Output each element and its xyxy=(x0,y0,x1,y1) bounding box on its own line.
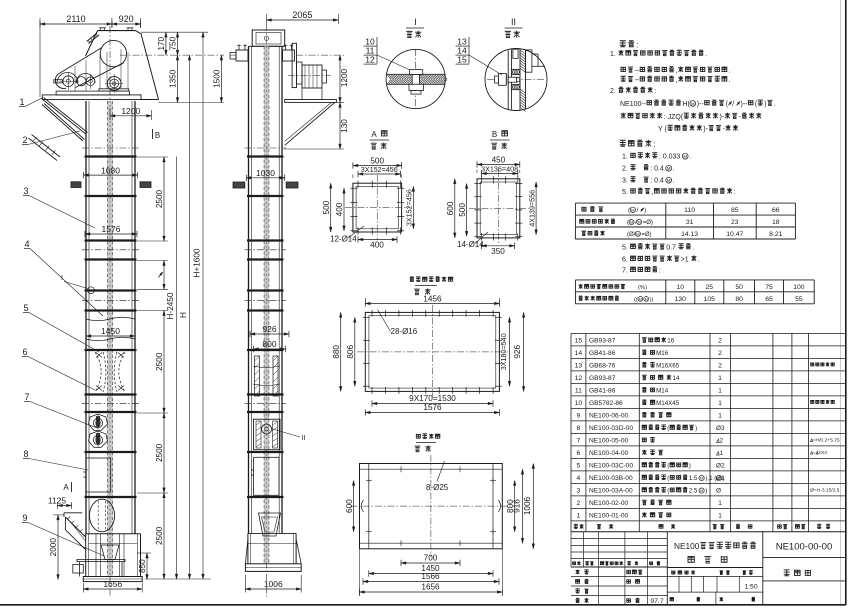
svg-text:I: I xyxy=(414,17,417,27)
svg-text:4: 4 xyxy=(24,239,29,249)
svg-text:3.: 3. xyxy=(622,178,628,185)
svg-text:M: M xyxy=(631,208,634,213)
svg-text:13: 13 xyxy=(575,363,583,370)
svg-text:130: 130 xyxy=(675,296,687,303)
svg-text:6.: 6. xyxy=(622,257,628,264)
svg-text:1200: 1200 xyxy=(121,106,140,116)
svg-text::: : xyxy=(636,41,638,50)
svg-text:M14X45: M14X45 xyxy=(656,400,680,407)
svg-text:NE100-02-00: NE100-02-00 xyxy=(589,500,629,507)
svg-text:II: II xyxy=(511,17,516,27)
svg-text:2: 2 xyxy=(22,135,27,145)
svg-text:B: B xyxy=(155,131,160,140)
svg-text:=H/0.2+5.75: =H/0.2+5.75 xyxy=(813,438,840,444)
svg-text::: : xyxy=(653,140,655,149)
svg-text:66: 66 xyxy=(772,207,780,214)
svg-text:14.13: 14.13 xyxy=(681,231,698,238)
svg-text:1: 1 xyxy=(718,513,722,520)
svg-text:28-Ø16: 28-Ø16 xyxy=(391,327,418,336)
svg-text:Ø=H-3.15/2.5: Ø=H-3.15/2.5 xyxy=(810,488,840,494)
svg-text:1: 1 xyxy=(19,97,24,107)
svg-text:M: M xyxy=(667,166,671,171)
svg-text:14: 14 xyxy=(575,350,583,357)
svg-text:=Ø): =Ø) xyxy=(643,220,653,226)
svg-text:1006: 1006 xyxy=(523,496,532,515)
svg-text:Ø: Ø xyxy=(716,488,721,495)
svg-text:2.: 2. xyxy=(622,166,628,173)
svg-text:GB93-87: GB93-87 xyxy=(589,338,616,345)
svg-text:M: M xyxy=(638,221,641,225)
svg-text:)): )) xyxy=(650,297,654,303)
svg-text:GB93-87: GB93-87 xyxy=(589,375,616,382)
svg-text:): ) xyxy=(644,207,646,214)
svg-text:M: M xyxy=(639,297,642,301)
svg-text:NE100-03C-00: NE100-03C-00 xyxy=(589,463,633,470)
svg-text:1500: 1500 xyxy=(213,69,222,88)
svg-text:450: 450 xyxy=(492,156,506,165)
svg-text:16: 16 xyxy=(667,338,674,345)
svg-text:110: 110 xyxy=(684,207,695,214)
svg-text:6: 6 xyxy=(577,450,581,457)
svg-text:M14: M14 xyxy=(656,388,669,395)
svg-text:880: 880 xyxy=(332,345,341,359)
svg-text:2500: 2500 xyxy=(155,352,164,371)
svg-text:15: 15 xyxy=(575,338,583,345)
svg-text::: : xyxy=(654,88,656,95)
svg-text:.: . xyxy=(698,257,700,264)
svg-text:100: 100 xyxy=(793,284,805,291)
svg-text:400: 400 xyxy=(335,202,344,216)
svg-text:H: H xyxy=(179,312,188,318)
svg-text:,: , xyxy=(676,68,678,75)
svg-text:105: 105 xyxy=(704,296,716,303)
svg-text:2000: 2000 xyxy=(49,538,58,557)
svg-text:97.7: 97.7 xyxy=(650,598,663,605)
svg-text:): ) xyxy=(764,101,766,108)
svg-text:5: 5 xyxy=(577,463,581,470)
svg-text:11: 11 xyxy=(575,388,582,395)
svg-text:H-2450: H-2450 xyxy=(166,292,175,319)
svg-text:8.21: 8.21 xyxy=(769,231,782,238)
svg-text:3: 3 xyxy=(23,186,28,196)
svg-text:8: 8 xyxy=(23,449,28,459)
svg-text:14-Ø14: 14-Ø14 xyxy=(457,240,484,249)
svg-text:(: ( xyxy=(627,220,629,226)
svg-text:B: B xyxy=(492,130,497,139)
svg-text:A: A xyxy=(63,483,69,492)
svg-text:2065: 2065 xyxy=(292,10,312,20)
svg-text:1006: 1006 xyxy=(264,579,283,589)
svg-text:Ø1: Ø1 xyxy=(716,475,725,482)
svg-text:3X180=540: 3X180=540 xyxy=(499,333,508,370)
svg-text:2500: 2500 xyxy=(155,443,164,462)
svg-text:: JZQ(: : JZQ( xyxy=(664,114,684,121)
svg-text:18: 18 xyxy=(772,219,780,226)
svg-text:.: . xyxy=(692,245,694,252)
svg-text:/: / xyxy=(732,101,734,108)
svg-text:1: 1 xyxy=(718,388,722,395)
svg-text::: : xyxy=(734,189,736,196)
svg-text:=Ø): =Ø) xyxy=(641,232,651,238)
svg-text:2.5: 2.5 xyxy=(689,488,698,495)
svg-text:M: M xyxy=(700,477,703,481)
svg-text:NE100-03A-00: NE100-03A-00 xyxy=(589,488,633,495)
svg-text:): ) xyxy=(689,463,691,470)
svg-text:--: -- xyxy=(635,68,640,75)
svg-text:M: M xyxy=(683,154,687,159)
svg-text:8-Ø25: 8-Ø25 xyxy=(426,483,449,492)
svg-text:M: M xyxy=(636,232,639,236)
svg-text:.: . xyxy=(705,51,707,58)
svg-text:.: . xyxy=(774,101,776,108)
svg-text:9: 9 xyxy=(22,513,27,523)
svg-text:NE100-03D-00: NE100-03D-00 xyxy=(589,425,633,432)
svg-text:NE100--: NE100-- xyxy=(620,101,647,108)
svg-text:1: 1 xyxy=(577,513,581,520)
svg-text:GB68-76: GB68-76 xyxy=(589,363,616,370)
svg-text:916: 916 xyxy=(512,499,521,513)
svg-text:1030: 1030 xyxy=(256,168,275,178)
svg-text:600: 600 xyxy=(446,201,455,215)
svg-text:1125: 1125 xyxy=(48,496,67,506)
svg-text:/: / xyxy=(637,207,639,214)
svg-text:926: 926 xyxy=(513,345,522,359)
svg-text:130: 130 xyxy=(340,119,349,133)
svg-text:85: 85 xyxy=(731,207,739,214)
svg-text:M: M xyxy=(630,221,633,225)
svg-text:.: . xyxy=(673,178,675,185)
svg-text:12: 12 xyxy=(575,375,583,382)
svg-text:0.7: 0.7 xyxy=(666,245,676,252)
svg-text:1: 1 xyxy=(718,500,722,507)
svg-text:4X139=556: 4X139=556 xyxy=(527,190,536,227)
svg-text:25: 25 xyxy=(706,284,714,291)
svg-text:170: 170 xyxy=(157,36,166,50)
svg-text:II: II xyxy=(302,435,306,442)
svg-text:700: 700 xyxy=(424,554,438,563)
svg-text:1656: 1656 xyxy=(421,583,440,592)
svg-text:2500: 2500 xyxy=(155,189,164,208)
svg-text:GB41-86: GB41-86 xyxy=(589,350,616,357)
svg-text:926: 926 xyxy=(262,324,276,334)
svg-text:80: 80 xyxy=(735,296,743,303)
svg-text:2.: 2. xyxy=(610,88,616,95)
svg-text:1450: 1450 xyxy=(101,326,120,336)
svg-text:31: 31 xyxy=(686,219,694,226)
svg-text:2: 2 xyxy=(720,438,724,445)
svg-text:2X4: 2X4 xyxy=(818,450,827,456)
svg-text:NE100-04-00: NE100-04-00 xyxy=(589,450,629,457)
svg-text:H+1600: H+1600 xyxy=(193,248,202,277)
svg-text:NE100-06-00: NE100-06-00 xyxy=(589,413,629,420)
svg-text:2: 2 xyxy=(718,338,722,345)
svg-text:: 0.4: : 0.4 xyxy=(650,166,664,173)
svg-text:A: A xyxy=(371,130,377,139)
svg-text:500: 500 xyxy=(458,203,467,217)
svg-text:.: . xyxy=(689,154,691,161)
svg-text:2: 2 xyxy=(718,363,722,370)
svg-text:I: I xyxy=(61,275,63,282)
svg-text:1656: 1656 xyxy=(103,579,122,589)
svg-text:NE100: NE100 xyxy=(674,541,700,551)
svg-text:1: 1 xyxy=(718,400,722,407)
svg-text:2: 2 xyxy=(577,500,581,507)
svg-text:1680: 1680 xyxy=(101,165,120,175)
svg-text:(%): (%) xyxy=(638,285,647,291)
svg-text:1.: 1. xyxy=(622,154,628,161)
svg-text:600: 600 xyxy=(345,499,354,513)
svg-text:M: M xyxy=(691,101,695,106)
svg-text:1: 1 xyxy=(718,375,722,382)
svg-text:,: , xyxy=(676,77,678,84)
svg-text:750: 750 xyxy=(169,36,178,50)
svg-text:): ) xyxy=(695,425,697,432)
svg-text:--: -- xyxy=(635,77,640,84)
svg-text:1350: 1350 xyxy=(169,69,178,88)
svg-text:1.5: 1.5 xyxy=(689,475,698,482)
svg-text:1:50: 1:50 xyxy=(744,584,757,591)
svg-text:.: . xyxy=(729,68,731,75)
svg-text:9X170=1530: 9X170=1530 xyxy=(409,394,456,403)
svg-text:H(: H( xyxy=(683,101,691,108)
svg-text:1.: 1. xyxy=(610,51,616,58)
svg-text:,: , xyxy=(652,189,654,196)
svg-text:M: M xyxy=(667,178,671,183)
svg-text:M: M xyxy=(700,489,703,493)
svg-text:M16X65: M16X65 xyxy=(656,363,680,370)
svg-text:M16: M16 xyxy=(656,350,669,357)
svg-text:850: 850 xyxy=(138,559,147,573)
svg-text:5: 5 xyxy=(23,303,28,313)
svg-text:65: 65 xyxy=(765,296,773,303)
svg-text:12: 12 xyxy=(365,55,375,65)
svg-text:50: 50 xyxy=(735,284,743,291)
svg-text:NE100-03B-00: NE100-03B-00 xyxy=(589,475,633,482)
svg-text:Y (: Y ( xyxy=(658,126,667,133)
svg-text:9: 9 xyxy=(577,413,581,420)
svg-text::: : xyxy=(659,268,661,275)
svg-text:7: 7 xyxy=(577,438,581,445)
svg-text:1576: 1576 xyxy=(423,403,442,412)
svg-text:6: 6 xyxy=(22,347,27,357)
svg-text:M: M xyxy=(645,297,648,301)
svg-text:=: = xyxy=(813,451,816,456)
svg-text:5.: 5. xyxy=(622,189,628,196)
svg-text:8: 8 xyxy=(577,425,581,432)
svg-text:15: 15 xyxy=(457,55,467,65)
svg-text:.: . xyxy=(673,166,675,173)
svg-text:Ø3: Ø3 xyxy=(716,425,725,432)
svg-text:.: . xyxy=(729,77,731,84)
svg-text:10.47: 10.47 xyxy=(726,231,743,238)
svg-text:1566: 1566 xyxy=(421,572,440,581)
svg-text:: 0.033: : 0.033 xyxy=(659,154,681,161)
svg-text:1: 1 xyxy=(718,413,722,420)
svg-text:(Ø/: (Ø/ xyxy=(627,232,636,238)
svg-text:GB5782-86: GB5782-86 xyxy=(589,400,623,407)
svg-text:12-Ø14: 12-Ø14 xyxy=(330,235,357,244)
svg-text:3X152=456: 3X152=456 xyxy=(361,165,398,174)
svg-text:400: 400 xyxy=(370,241,384,250)
svg-text:4: 4 xyxy=(577,475,581,482)
svg-text:2: 2 xyxy=(718,350,722,357)
svg-text:75: 75 xyxy=(765,284,773,291)
svg-text:2110: 2110 xyxy=(66,14,85,24)
svg-text:806: 806 xyxy=(346,345,355,359)
svg-text:3X136=408: 3X136=408 xyxy=(481,165,518,174)
svg-text:1456: 1456 xyxy=(423,295,442,304)
svg-text:3: 3 xyxy=(577,488,581,495)
svg-text:10: 10 xyxy=(677,284,685,291)
svg-text:)-: )- xyxy=(720,114,725,121)
svg-text:1576: 1576 xyxy=(102,224,121,234)
svg-text:1200: 1200 xyxy=(340,68,349,87)
svg-text:1: 1 xyxy=(720,450,724,457)
svg-text:350: 350 xyxy=(491,247,505,256)
svg-text:800: 800 xyxy=(262,339,276,349)
svg-text:NE100-05-00: NE100-05-00 xyxy=(589,438,629,445)
svg-text:Ø2: Ø2 xyxy=(716,463,725,470)
svg-text:)--: )-- xyxy=(741,101,749,108)
svg-text:GB41-86: GB41-86 xyxy=(589,388,616,395)
svg-text:)-: )- xyxy=(703,126,708,133)
svg-text:10: 10 xyxy=(575,400,583,407)
svg-text:23: 23 xyxy=(731,219,739,226)
svg-text:14: 14 xyxy=(673,375,680,382)
svg-text:NE100-00-00: NE100-00-00 xyxy=(776,542,833,553)
svg-text:NE100-01-00: NE100-01-00 xyxy=(589,513,629,520)
svg-text:7: 7 xyxy=(24,392,29,402)
svg-text:((: (( xyxy=(634,297,638,303)
svg-text:55: 55 xyxy=(795,296,803,303)
svg-text:: 0.4: : 0.4 xyxy=(650,178,664,185)
svg-text:2500: 2500 xyxy=(155,526,164,545)
svg-text:5.: 5. xyxy=(622,245,628,252)
svg-text:920: 920 xyxy=(119,14,134,24)
svg-text:7.: 7. xyxy=(622,268,628,275)
svg-text:)--: )-- xyxy=(697,101,705,108)
svg-text:500: 500 xyxy=(322,200,331,214)
svg-text:>1: >1 xyxy=(681,257,689,264)
svg-text:): ) xyxy=(705,488,707,495)
svg-text:3X152=456: 3X152=456 xyxy=(405,189,414,226)
